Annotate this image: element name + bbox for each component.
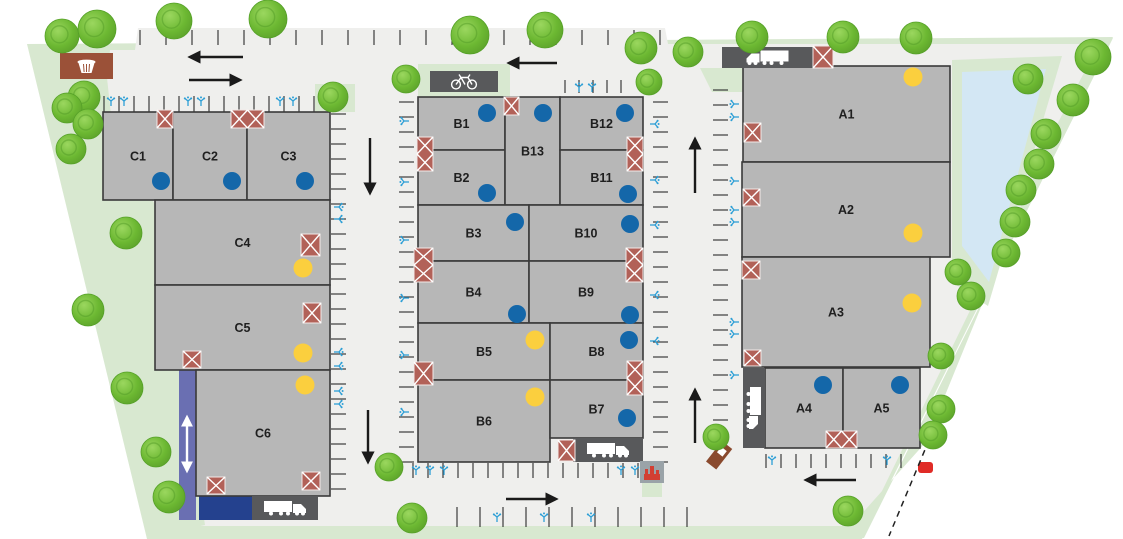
- blue-dot-marker: [891, 376, 909, 394]
- tree-icon: [1006, 175, 1036, 205]
- building-label-B10: B10: [575, 226, 598, 240]
- red-vehicle: [918, 462, 933, 473]
- loading-door-marker: [183, 351, 201, 368]
- building-label-C2: C2: [202, 149, 218, 163]
- tree-icon: [703, 424, 729, 450]
- blue-structure: [199, 496, 252, 520]
- yellow-dot-marker: [294, 259, 313, 278]
- building-label-A4: A4: [796, 401, 812, 415]
- tree-icon: [397, 503, 427, 533]
- yellow-dot-marker: [296, 376, 315, 395]
- tree-icon: [673, 37, 703, 67]
- tree-icon: [945, 259, 971, 285]
- building-label-B3: B3: [466, 226, 482, 240]
- tree-icon: [111, 372, 143, 404]
- tree-icon: [56, 134, 86, 164]
- building-label-B9: B9: [578, 285, 594, 299]
- building-label-C1: C1: [130, 149, 146, 163]
- building-label-B2: B2: [454, 171, 470, 185]
- loading-door-marker: [231, 110, 264, 128]
- tree-icon: [375, 453, 403, 481]
- building-label-C6: C6: [255, 426, 271, 440]
- blue-dot-marker: [620, 331, 638, 349]
- green-patch: [168, 526, 863, 538]
- building-label-B11: B11: [590, 171, 612, 185]
- loading-door-marker: [558, 440, 575, 461]
- tree-icon: [927, 395, 955, 423]
- loading-door-marker: [303, 303, 321, 323]
- tree-icon: [73, 109, 103, 139]
- tree-icon: [141, 437, 171, 467]
- tree-icon: [833, 496, 863, 526]
- green-patch: [642, 482, 662, 497]
- yellow-dot-marker: [904, 68, 923, 87]
- tree-icon: [527, 12, 563, 48]
- yellow-dot-marker: [526, 331, 545, 350]
- blue-dot-marker: [619, 185, 637, 203]
- building-label-C4: C4: [235, 236, 251, 250]
- blue-dot-marker: [534, 104, 552, 122]
- tree-icon: [736, 21, 768, 53]
- tree-icon: [992, 239, 1020, 267]
- blue-dot-marker: [814, 376, 832, 394]
- building-label-A3: A3: [828, 305, 844, 319]
- loading-door-marker: [813, 46, 833, 68]
- building-label-B7: B7: [589, 402, 605, 416]
- tree-icon: [1024, 149, 1054, 179]
- loading-door-marker: [626, 248, 643, 282]
- tree-icon: [45, 19, 79, 53]
- loading-door-marker: [744, 350, 761, 366]
- loading-door-marker: [504, 97, 519, 115]
- loading-door-marker: [744, 123, 761, 142]
- blue-dot-marker: [223, 172, 241, 190]
- blue-dot-marker: [478, 104, 496, 122]
- tree-icon: [1031, 119, 1061, 149]
- building-label-A2: A2: [838, 203, 854, 217]
- tree-icon: [1013, 64, 1043, 94]
- tree-icon: [392, 65, 420, 93]
- tree-icon: [1075, 39, 1111, 75]
- loading-door-marker: [414, 248, 433, 282]
- tree-icon: [72, 294, 104, 326]
- loading-door-marker: [301, 234, 320, 256]
- tree-icon: [957, 282, 985, 310]
- building-label-B8: B8: [589, 345, 605, 359]
- tree-icon: [153, 481, 185, 513]
- loading-door-marker: [207, 477, 225, 494]
- building-label-C3: C3: [281, 149, 297, 163]
- yellow-dot-marker: [903, 294, 922, 313]
- loading-door-marker: [826, 431, 857, 448]
- blue-dot-marker: [616, 104, 634, 122]
- yellow-dot-marker: [904, 224, 923, 243]
- building-label-B6: B6: [476, 414, 492, 428]
- tree-icon: [827, 21, 859, 53]
- loading-door-marker: [627, 137, 643, 171]
- blue-dot-marker: [508, 305, 526, 323]
- parking-row: [140, 30, 660, 45]
- tree-icon: [451, 16, 489, 54]
- site-plan-canvas: C1C2C3C4C5C6B1B2B13B12B11B3B10B4B9B5B8B6…: [0, 0, 1123, 539]
- blue-dot-marker: [506, 213, 524, 231]
- site-plan: C1C2C3C4C5C6B1B2B13B12B11B3B10B4B9B5B8B6…: [0, 0, 1123, 539]
- tree-icon: [318, 82, 348, 112]
- building-label-A5: A5: [874, 401, 890, 415]
- tree-icon: [928, 343, 954, 369]
- building-label-B12: B12: [590, 117, 613, 131]
- building-label-B1: B1: [454, 117, 470, 131]
- tree-icon: [1000, 207, 1030, 237]
- tree-icon: [636, 69, 662, 95]
- blue-dot-marker: [152, 172, 170, 190]
- building-label-A1: A1: [839, 107, 855, 121]
- blue-dot-marker: [621, 215, 639, 233]
- loading-door-marker: [157, 110, 173, 128]
- yellow-dot-marker: [526, 388, 545, 407]
- blue-dot-marker: [621, 306, 639, 324]
- tree-icon: [110, 217, 142, 249]
- blue-dot-marker: [296, 172, 314, 190]
- tree-icon: [249, 0, 287, 38]
- tree-icon: [900, 22, 932, 54]
- building-label-B4: B4: [466, 285, 482, 299]
- tree-icon: [919, 421, 947, 449]
- tree-icon: [78, 10, 116, 48]
- building-label-C5: C5: [235, 321, 251, 335]
- loading-door-marker: [743, 189, 760, 206]
- loading-door-marker: [627, 361, 643, 395]
- blue-dot-marker: [618, 409, 636, 427]
- loading-door-marker: [414, 362, 433, 385]
- building-label-B13: B13: [521, 144, 544, 158]
- loading-door-marker: [417, 137, 433, 171]
- loading-door-marker: [742, 261, 760, 279]
- building-label-B5: B5: [476, 345, 492, 359]
- loading-door-marker: [302, 472, 320, 490]
- yellow-dot-marker: [294, 344, 313, 363]
- blue-dot-marker: [478, 184, 496, 202]
- tree-icon: [1057, 84, 1089, 116]
- tree-icon: [625, 32, 657, 64]
- tree-icon: [156, 3, 192, 39]
